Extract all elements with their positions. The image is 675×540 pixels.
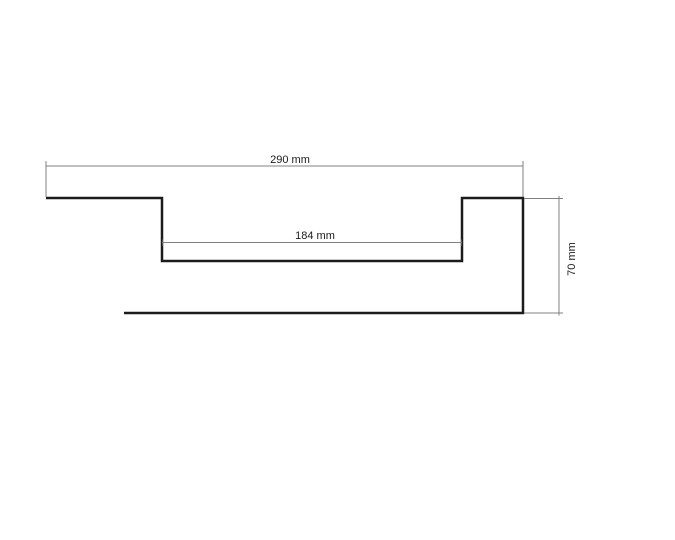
dimension-inner-width: 184 mm bbox=[162, 230, 462, 246]
profile-outline bbox=[46, 198, 523, 313]
dimension-label-height: 70 mm bbox=[566, 242, 578, 276]
dimension-height: 70 mm bbox=[524, 196, 578, 316]
technical-drawing-page: 290 mm 184 mm 70 mm bbox=[0, 0, 675, 540]
dimension-label-inner-width: 184 mm bbox=[295, 230, 335, 242]
dimension-overall-width: 290 mm bbox=[46, 154, 523, 197]
drawing-canvas: 290 mm 184 mm 70 mm bbox=[0, 0, 675, 540]
dimension-label-overall-width: 290 mm bbox=[270, 154, 310, 166]
